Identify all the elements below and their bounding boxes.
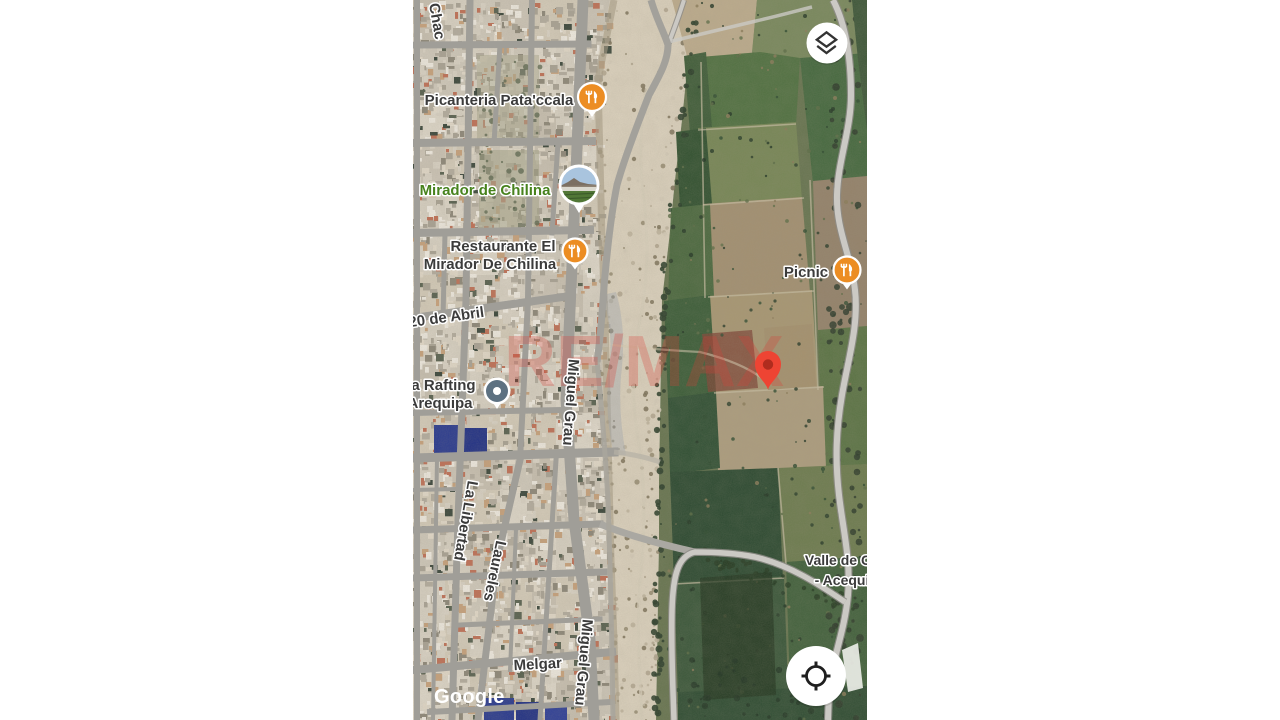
svg-text:Google: Google — [434, 686, 505, 708]
svg-text:Arequipa: Arequipa — [407, 395, 473, 412]
svg-text:Mirador De Chilina: Mirador De Chilina — [424, 256, 557, 273]
svg-text:Picnic: Picnic — [784, 264, 828, 281]
svg-text:Mirador de Chilina: Mirador de Chilina — [420, 182, 552, 199]
svg-text:ta Rafting: ta Rafting — [406, 377, 475, 394]
svg-text:Restaurante El: Restaurante El — [450, 238, 555, 255]
svg-text:RE/MAX: RE/MAX — [504, 322, 784, 402]
svg-text:Melgar: Melgar — [513, 655, 562, 675]
svg-text:Valle de C: Valle de C — [805, 552, 871, 568]
svg-text:Picanteria Pata'ccala: Picanteria Pata'ccala — [425, 92, 574, 109]
svg-text:- Acequi: - Acequi — [815, 572, 870, 588]
